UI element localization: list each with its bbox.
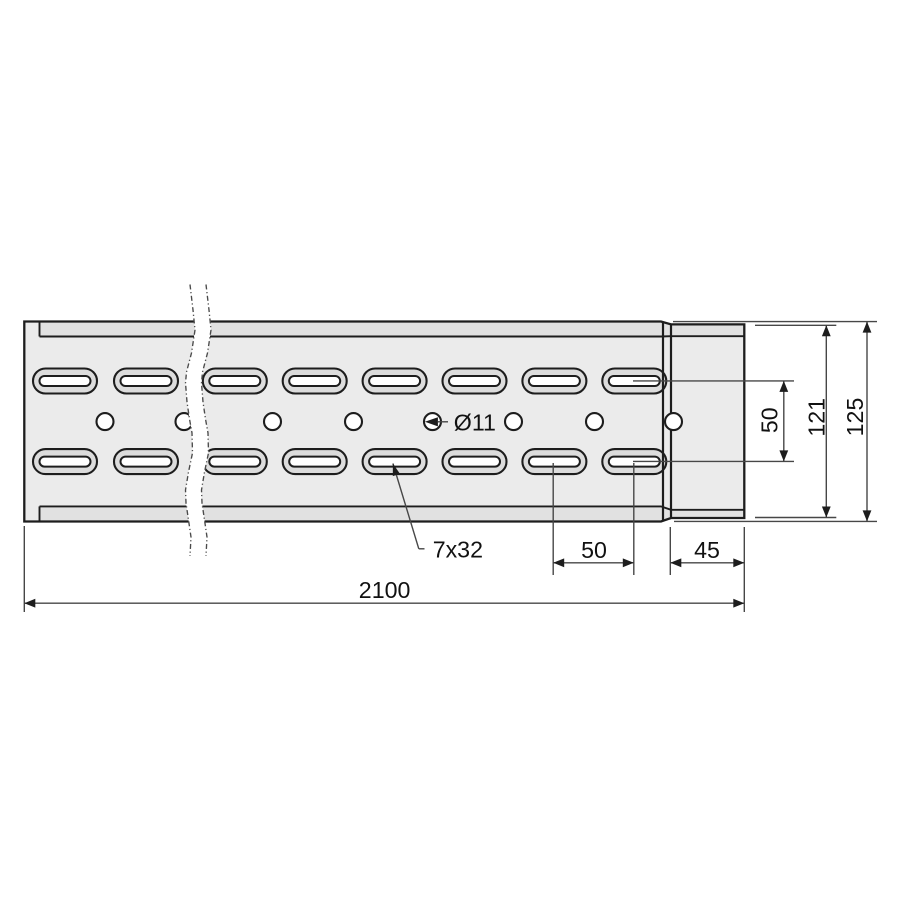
svg-text:7x32: 7x32 <box>433 536 483 562</box>
svg-text:45: 45 <box>694 537 720 563</box>
svg-text:Ø11: Ø11 <box>454 409 496 435</box>
svg-text:50: 50 <box>581 537 607 563</box>
svg-text:121: 121 <box>803 398 829 437</box>
svg-text:50: 50 <box>756 407 782 433</box>
svg-text:125: 125 <box>842 398 868 437</box>
svg-text:2100: 2100 <box>359 577 411 603</box>
